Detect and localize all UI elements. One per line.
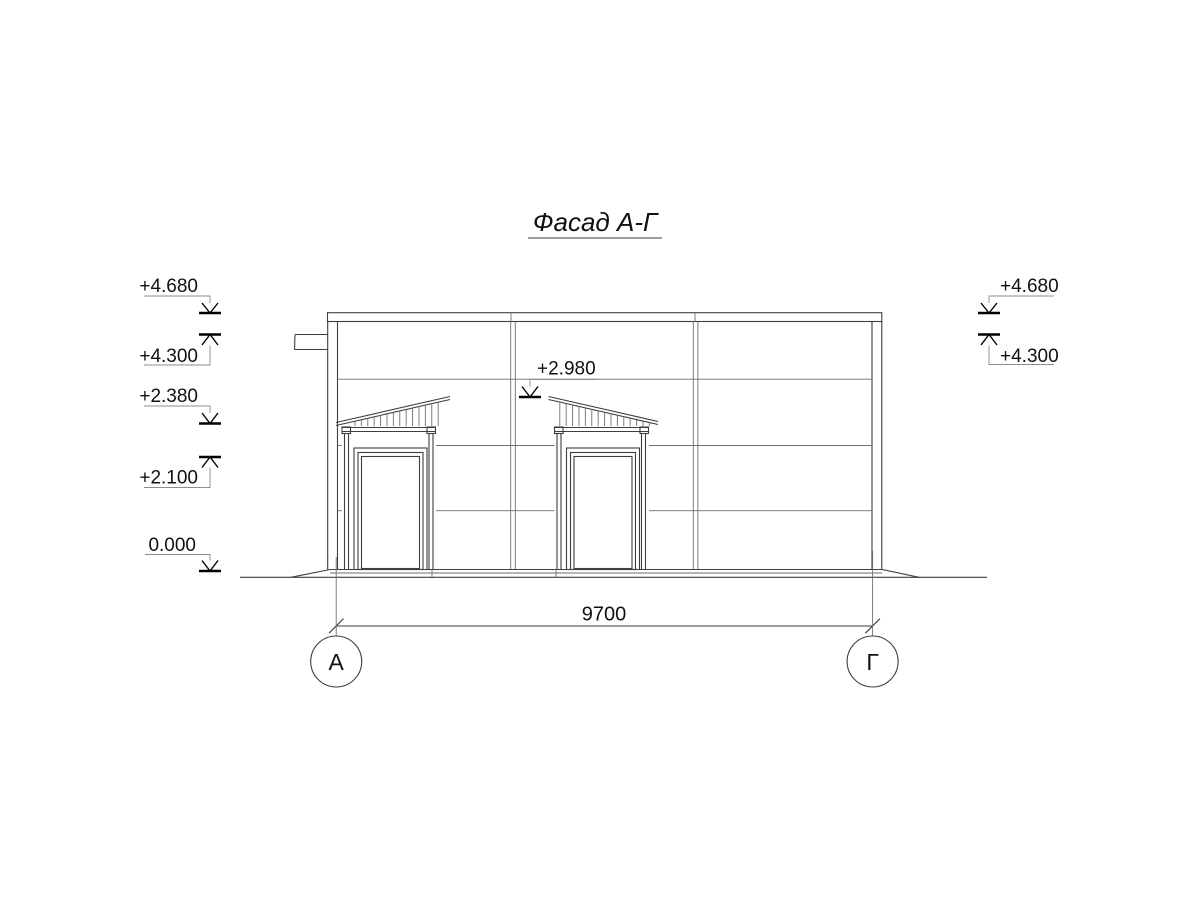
left-door-frame bbox=[354, 448, 427, 570]
elevation-mark: 0.000 bbox=[145, 535, 221, 571]
elevation-mark: +4.680 bbox=[139, 276, 221, 313]
dimension-line-group: 9700 bbox=[329, 604, 880, 634]
drawing-title-text: Фасад А-Г bbox=[533, 207, 659, 237]
elevation-label: +4.300 bbox=[139, 346, 198, 367]
left-door-leaf bbox=[362, 457, 420, 569]
elevation-mark: +4.680 bbox=[978, 276, 1059, 313]
elevation-mark: +2.100 bbox=[139, 457, 221, 489]
dimension-value: 9700 bbox=[582, 604, 627, 626]
elevation-marks-left: +4.680 +4.300 +2.380 +2.100 bbox=[139, 276, 221, 571]
right-door-frame bbox=[567, 448, 640, 570]
right-door-leaf bbox=[574, 457, 632, 569]
elevation-label: +2.100 bbox=[139, 468, 198, 489]
right-door-assembly bbox=[549, 397, 659, 570]
elevation-label: +4.680 bbox=[139, 276, 198, 297]
plinth-and-ground bbox=[240, 570, 987, 578]
elevation-marks-right: +4.680 +4.300 bbox=[978, 276, 1059, 367]
scupper-pipe bbox=[295, 335, 328, 350]
elevation-label: +4.680 bbox=[1000, 276, 1059, 297]
left-wall bbox=[328, 322, 338, 570]
elevation-mark: +4.300 bbox=[139, 335, 221, 368]
drawing-title: Фасад А-Г bbox=[528, 207, 662, 238]
facade-drawing-canvas: Фасад А-Г bbox=[0, 0, 1200, 900]
building-facade bbox=[240, 313, 987, 578]
elevation-mark: +4.300 bbox=[978, 335, 1059, 368]
left-door bbox=[354, 448, 427, 570]
left-canopy bbox=[336, 397, 450, 570]
right-canopy-hatch bbox=[554, 401, 650, 426]
elevation-mark-center: +2.980 bbox=[519, 359, 598, 398]
elevation-label: 0.000 bbox=[148, 535, 196, 556]
right-ramp bbox=[882, 570, 919, 578]
left-door-assembly bbox=[336, 397, 450, 570]
elevation-label: +2.380 bbox=[139, 386, 198, 407]
right-door bbox=[567, 448, 640, 570]
elevation-label: +2.980 bbox=[537, 359, 596, 380]
horizontal-panel-joints bbox=[338, 379, 873, 511]
axis-label-right: Г bbox=[866, 649, 879, 675]
parapet-band bbox=[328, 313, 882, 322]
right-canopy bbox=[549, 397, 659, 570]
left-canopy-hatch bbox=[349, 401, 444, 426]
elevation-label: +4.300 bbox=[1000, 346, 1059, 367]
elevation-mark: +2.380 bbox=[139, 386, 221, 424]
axis-label-left: А bbox=[329, 649, 345, 675]
right-wall bbox=[872, 322, 882, 570]
left-ramp bbox=[291, 570, 330, 578]
